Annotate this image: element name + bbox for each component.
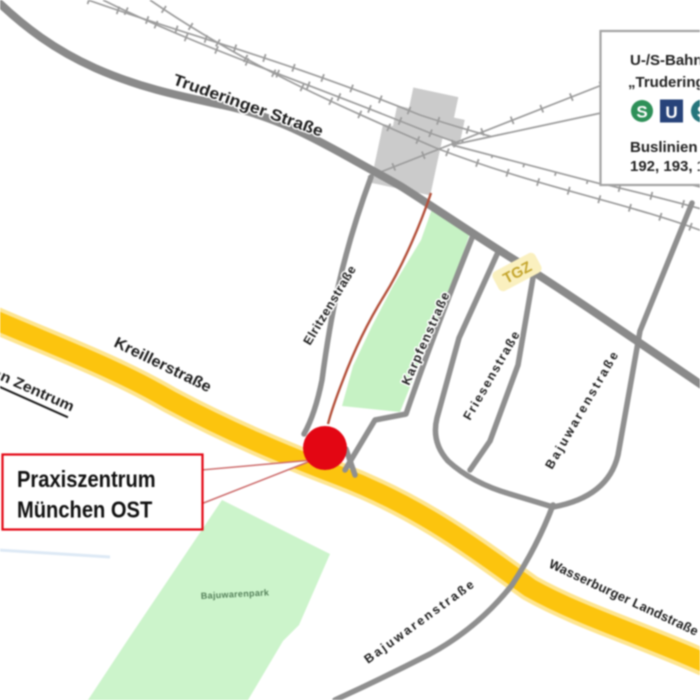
svg-text:U-/S-Bahnhof: U-/S-Bahnhof: [630, 52, 700, 69]
svg-text:Buslinien 192,: Buslinien 192,: [630, 139, 700, 156]
svg-text:Praxiszentrum: Praxiszentrum: [17, 466, 156, 493]
svg-text:S: S: [636, 103, 647, 122]
svg-text:192, 193, 194: 192, 193, 194: [630, 158, 700, 175]
svg-text:München OST: München OST: [17, 496, 152, 523]
svg-text:„Trudering“: „Trudering“: [628, 74, 700, 91]
svg-text:U: U: [665, 103, 677, 122]
